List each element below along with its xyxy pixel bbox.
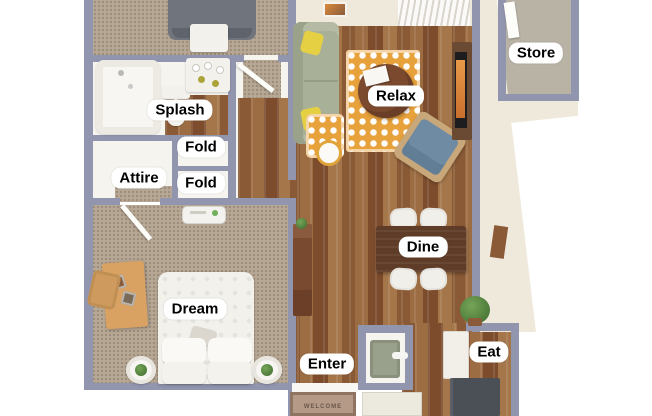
wall-dream-north-b bbox=[160, 198, 296, 205]
side-tray-table bbox=[316, 140, 342, 166]
nightstand-right-plant bbox=[261, 364, 273, 376]
vanity-bottle-1 bbox=[198, 76, 205, 83]
wall-ac-unit bbox=[182, 206, 226, 224]
dream-bed-pillow-2 bbox=[208, 338, 252, 364]
wall-east bbox=[472, 0, 480, 332]
floor-plan-canvas: WELCOME Store Splash Fold Attire Fold Re… bbox=[0, 0, 652, 416]
room-label-fold-upper: Fold bbox=[177, 137, 225, 158]
room-label-dine: Dine bbox=[399, 237, 448, 258]
welcome-mat-text: WELCOME bbox=[304, 404, 342, 410]
bathtub-faucet bbox=[118, 70, 124, 76]
tv-screen bbox=[456, 60, 465, 118]
ac-unit-light bbox=[212, 210, 218, 216]
entry-door-threshold bbox=[292, 383, 358, 392]
kitchen-base-cabinet bbox=[362, 392, 422, 416]
room-label-eat: Eat bbox=[469, 342, 508, 363]
wall-dream-north-a bbox=[84, 198, 120, 205]
water-heater-pipe bbox=[392, 352, 408, 359]
kitchen-counter bbox=[443, 331, 469, 379]
wall-kitchen-east bbox=[511, 323, 519, 416]
wall-closet-divider-h bbox=[172, 166, 234, 171]
wall-utility-west bbox=[358, 325, 366, 390]
refrigerator bbox=[450, 378, 500, 416]
bathtub bbox=[96, 60, 160, 134]
room-label-splash: Splash bbox=[147, 100, 212, 121]
hall-dresser bbox=[293, 224, 312, 316]
hallway-wood-floor bbox=[238, 98, 290, 202]
hall-dresser-plant bbox=[296, 218, 307, 229]
room-label-store: Store bbox=[509, 43, 563, 64]
wall-storage-south bbox=[498, 94, 579, 101]
ac-unit-vent bbox=[190, 211, 206, 214]
wall-utility-south bbox=[358, 383, 413, 390]
room-label-fold-lower: Fold bbox=[177, 173, 225, 194]
vanity-glass-2 bbox=[204, 62, 212, 70]
nightstand-left-plant bbox=[135, 364, 147, 376]
room-label-relax: Relax bbox=[368, 86, 424, 107]
bathtub-drain bbox=[128, 84, 133, 89]
dining-chair-3 bbox=[389, 267, 417, 291]
welcome-mat: WELCOME bbox=[290, 392, 356, 416]
upper-bedroom-dresser bbox=[190, 24, 228, 52]
dream-bed-pillow-4 bbox=[208, 362, 252, 384]
room-label-dream: Dream bbox=[164, 299, 227, 320]
water-heater bbox=[370, 340, 400, 378]
dream-bed-pillow-1 bbox=[162, 338, 206, 364]
room-label-attire: Attire bbox=[111, 168, 166, 189]
wall-storage-east bbox=[571, 0, 579, 100]
vanity-bottle-2 bbox=[212, 80, 219, 87]
plant-pot bbox=[468, 318, 482, 326]
vanity-glass-1 bbox=[192, 64, 200, 72]
dream-bed-pillow-3 bbox=[162, 362, 206, 384]
window-blinds bbox=[398, 0, 470, 26]
sofa-cushion-seam bbox=[304, 80, 338, 82]
dining-chair-4 bbox=[419, 267, 447, 290]
wall-south bbox=[84, 383, 292, 390]
wall-art-frame bbox=[323, 2, 347, 17]
vanity-glass-3 bbox=[216, 66, 224, 74]
room-label-enter: Enter bbox=[300, 354, 354, 375]
